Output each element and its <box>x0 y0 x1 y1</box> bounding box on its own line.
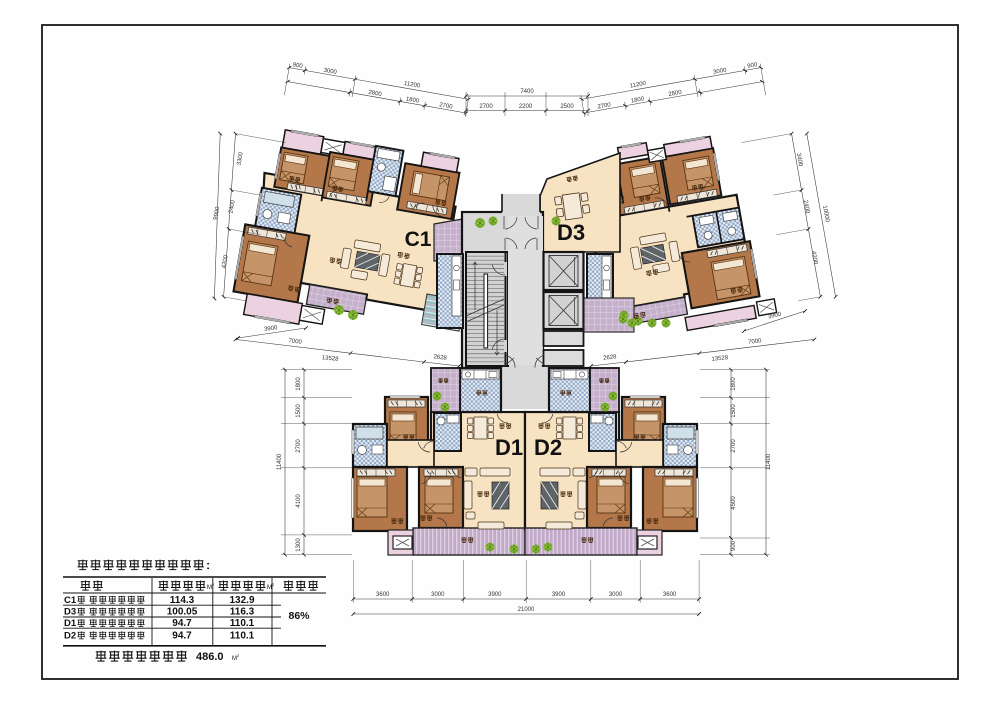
svg-text:100.05: 100.05 <box>167 607 198 618</box>
svg-text:C1: C1 <box>64 595 77 606</box>
svg-text:D2: D2 <box>534 435 562 460</box>
svg-text:1500: 1500 <box>731 404 737 418</box>
svg-text:2500: 2500 <box>560 104 574 110</box>
svg-text:132.9: 132.9 <box>229 595 254 606</box>
svg-text:900: 900 <box>731 540 737 551</box>
svg-text:4500: 4500 <box>731 496 737 510</box>
svg-text:1500: 1500 <box>296 404 302 418</box>
svg-text:1800: 1800 <box>296 377 302 391</box>
svg-text:C1: C1 <box>405 228 432 251</box>
svg-text:116.3: 116.3 <box>230 607 255 618</box>
svg-text:D1: D1 <box>64 618 77 629</box>
svg-text:D1: D1 <box>495 435 523 460</box>
svg-text:2700: 2700 <box>479 104 493 110</box>
svg-text:21000: 21000 <box>518 607 535 613</box>
svg-text:11400: 11400 <box>766 453 772 470</box>
svg-text:2200: 2200 <box>519 104 533 110</box>
svg-text:D3: D3 <box>557 220 585 245</box>
svg-text:11400: 11400 <box>277 453 283 470</box>
svg-text:4100: 4100 <box>296 494 302 508</box>
svg-text:3000: 3000 <box>431 592 445 598</box>
svg-text:2700: 2700 <box>731 439 737 453</box>
svg-text:110.1: 110.1 <box>230 630 255 641</box>
svg-text:3900: 3900 <box>552 592 566 598</box>
svg-text:D2: D2 <box>64 630 76 641</box>
svg-text:1800: 1800 <box>731 377 737 391</box>
svg-text:2700: 2700 <box>296 439 302 453</box>
svg-text:3000: 3000 <box>609 592 623 598</box>
svg-text:114.3: 114.3 <box>170 595 195 606</box>
svg-text:1300: 1300 <box>296 538 302 552</box>
svg-text:94.7: 94.7 <box>172 618 192 629</box>
svg-text:486.0: 486.0 <box>196 651 224 663</box>
svg-text:3900: 3900 <box>488 592 502 598</box>
svg-text:D3: D3 <box>64 607 76 618</box>
svg-text:3600: 3600 <box>376 592 390 598</box>
svg-text:86%: 86% <box>288 610 310 622</box>
svg-text:94.7: 94.7 <box>172 630 192 641</box>
svg-text:3600: 3600 <box>663 592 677 598</box>
svg-text:110.1: 110.1 <box>230 618 255 629</box>
svg-text:7400: 7400 <box>520 89 534 95</box>
